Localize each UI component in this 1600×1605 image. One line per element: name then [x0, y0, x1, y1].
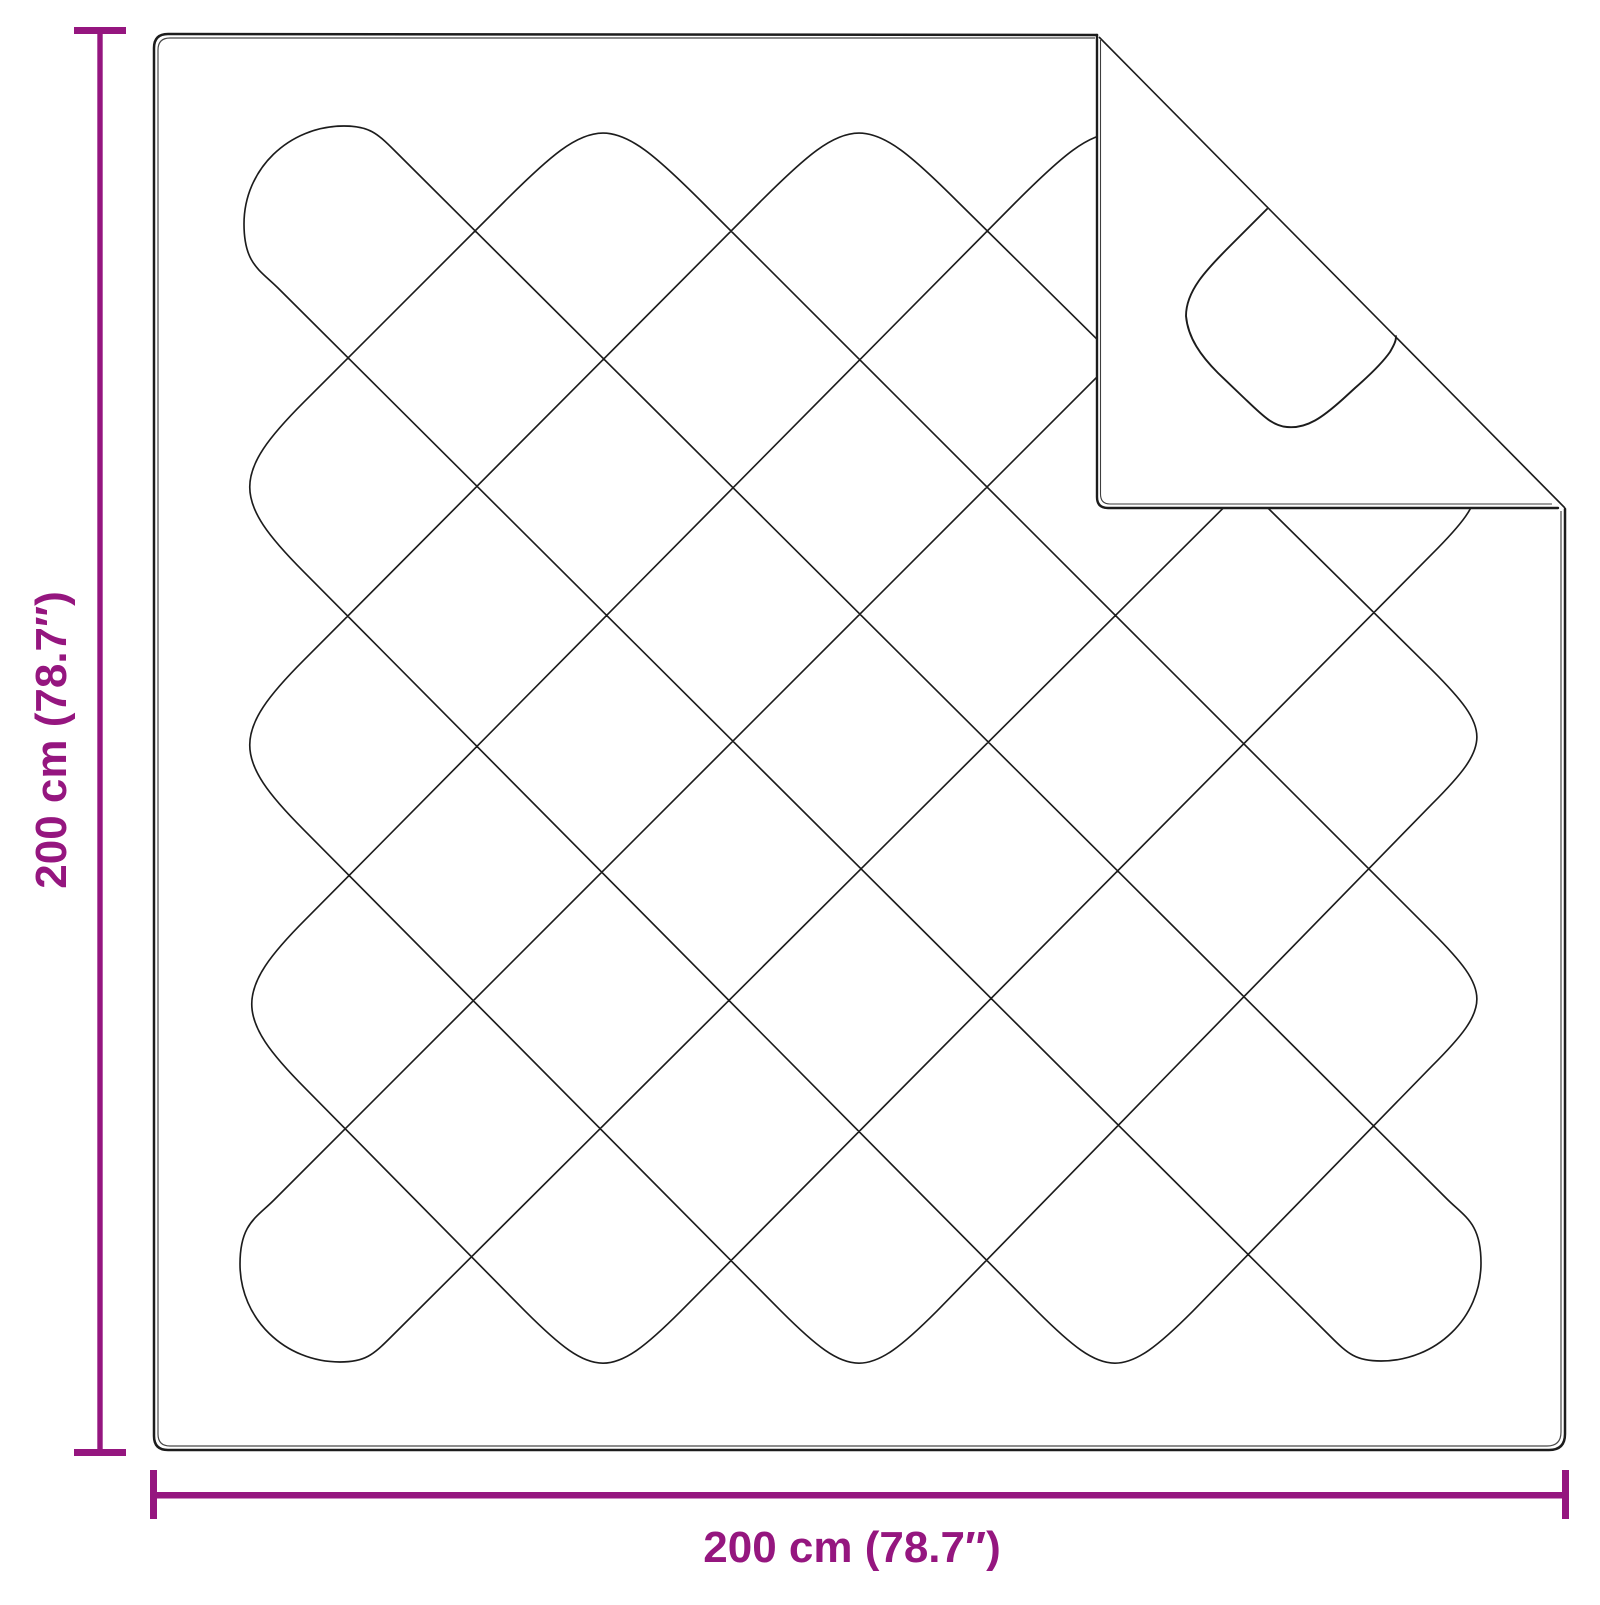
svg-text:200 cm (78.7″): 200 cm (78.7″) — [703, 1523, 1000, 1572]
svg-text:200 cm (78.7″): 200 cm (78.7″) — [27, 591, 76, 888]
